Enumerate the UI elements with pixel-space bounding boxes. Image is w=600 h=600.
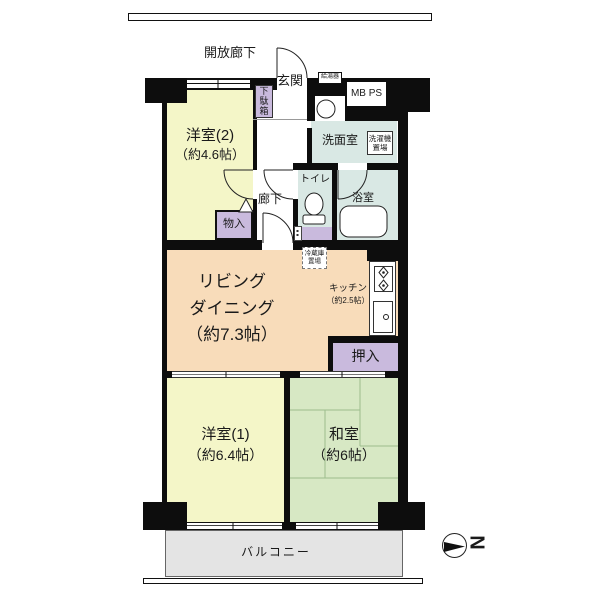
- wall-mid-band-a: [162, 240, 262, 250]
- wall-kitchen-top: [367, 240, 408, 261]
- entrance-label: 玄関: [270, 74, 310, 89]
- washer-space-label: 洗濯機置場: [368, 134, 392, 152]
- sink-box: [373, 301, 393, 333]
- room-western2-name: 洋室(2): [167, 127, 253, 144]
- toilet-counter: [301, 227, 332, 240]
- hall-living-door-icon: [263, 213, 293, 243]
- compass: [442, 533, 467, 558]
- fridge-space-label: 冷蔵庫置場: [303, 250, 326, 266]
- closet-monoire-label: 物入: [215, 218, 253, 231]
- wall-corner-bottom-left: [143, 502, 187, 530]
- room-living-label: リビング ダイニング （約7.3帖）: [167, 272, 297, 345]
- wall-washroom-bottom-a: [293, 163, 338, 170]
- toilet-label: トイレ: [298, 174, 332, 186]
- open-corridor-label: 開放廊下: [185, 46, 275, 61]
- window-balcony-left: [187, 522, 282, 530]
- wall-corner-bottom-right: [378, 502, 425, 530]
- room-western2-size: （約4.6帖）: [167, 148, 253, 163]
- room-western1-name: 洋室(1): [167, 426, 284, 443]
- room-bath: [337, 170, 398, 242]
- wall-washroom-bottom-b: [367, 163, 398, 170]
- water-heater-label: 給湯器: [318, 74, 342, 81]
- compass-north-letter: N: [465, 531, 488, 555]
- wall-lower-band-pier-right: [385, 371, 398, 378]
- balcony-rail: [143, 578, 423, 584]
- room-living-size: （約7.3帖）: [167, 325, 297, 345]
- sliding-door-oshiire-japanese: [300, 371, 385, 378]
- room-kitchen-label: キッチン （約2.5帖）: [322, 284, 374, 305]
- corridor-rail: [128, 13, 432, 21]
- wall-oshiire-top: [328, 336, 398, 343]
- mb-ps-label: MB PS: [347, 88, 386, 100]
- shoe-cabinet-label: 下駄箱: [257, 87, 271, 117]
- wall-lower-band-pier-left: [162, 371, 172, 378]
- vanity-box: [315, 96, 345, 121]
- balcony-label: バルコニー: [165, 546, 387, 560]
- room-western2-label: 洋室(2) （約4.6帖）: [167, 127, 253, 163]
- wall-toilet-bath: [332, 170, 337, 242]
- wall-bottom-pier: [282, 522, 296, 530]
- stove-box: [374, 266, 393, 292]
- genkan-step-line: [253, 119, 307, 120]
- wall-corner-top-right: [388, 78, 430, 112]
- wall-lower-band-pier-mid: [280, 371, 300, 378]
- room-kitchen-name: キッチン: [322, 284, 374, 295]
- window-western2-top: [187, 78, 250, 90]
- room-japanese-size: （約6帖）: [290, 447, 398, 463]
- washroom-label: 洗面室: [313, 134, 367, 148]
- room-western1-size: （約6.4帖）: [167, 447, 284, 463]
- bath-label: 浴室: [343, 192, 383, 205]
- wall-right: [398, 112, 408, 510]
- hallway-label: 廊下: [250, 193, 290, 207]
- wall-hall-washroom: [307, 128, 312, 163]
- toilet-side-box: [294, 226, 302, 241]
- room-japanese-name: 和室: [290, 426, 398, 443]
- window-balcony-right: [296, 522, 378, 530]
- room-western1-label: 洋室(1) （約6.4帖）: [167, 426, 284, 463]
- floorplan: 開放廊下 MB PS 給湯器 洗濯機置場 冷蔵庫置場: [0, 0, 600, 600]
- room-living-name2: ダイニング: [167, 299, 297, 319]
- room-japanese-label: 和室 （約6帖）: [290, 426, 398, 463]
- sliding-door-living-western1: [172, 371, 280, 378]
- room-living-name1: リビング: [167, 272, 297, 292]
- closet-oshiire-label: 押入: [333, 348, 398, 364]
- room-kitchen-size: （約2.5帖）: [322, 296, 374, 305]
